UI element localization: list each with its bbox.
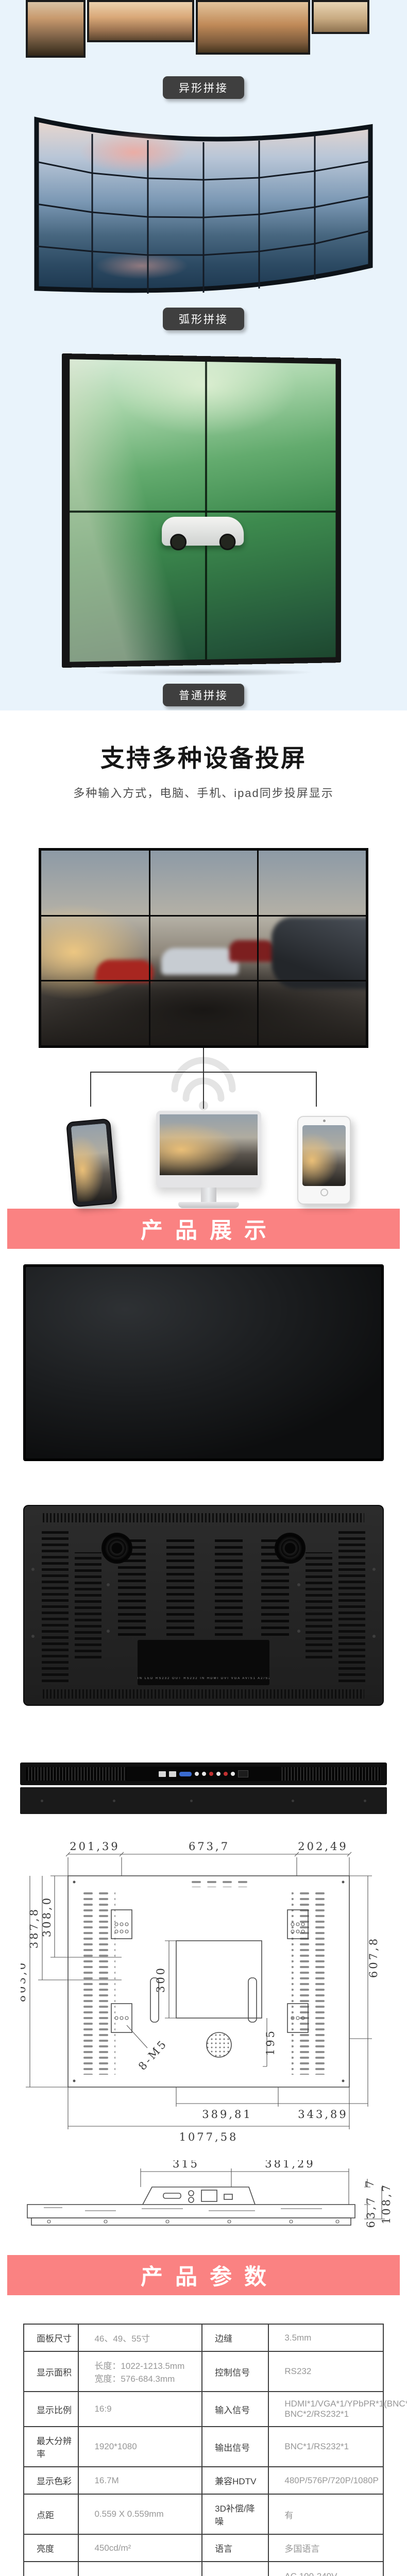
- phone-screen: [71, 1123, 113, 1202]
- wall-panel: [87, 0, 194, 42]
- dim-label: 202,49: [298, 1840, 348, 1853]
- port-labels: IN LED RS232 OUT RS232 IN HDMI DVI VGA A…: [138, 1677, 269, 1680]
- rca-jack: [231, 1772, 235, 1776]
- screen-cast-section: 支持多种设备投屏 多种输入方式，电脑、手机、ipad同步投屏显示: [0, 710, 407, 1209]
- banner-title: 产品展示: [128, 1213, 279, 1245]
- curved-wall-image: [33, 111, 374, 299]
- vent-strip: [43, 1689, 364, 1699]
- table-row: 显示面积 长度：1022-1213.5mm 宽度：576-684.3mm 控制信…: [24, 2351, 383, 2392]
- grid-line: [257, 851, 259, 1045]
- wall-panel: [26, 0, 86, 58]
- dim-label: 315: [173, 2160, 199, 2170]
- spec-value: BNC*1/RS232*1: [268, 2427, 383, 2467]
- grid-line: [41, 915, 366, 917]
- banner-title: 产品参数: [128, 2259, 279, 2291]
- hero-section: 异形拼接 弧形: [0, 0, 407, 710]
- rca-jack: [209, 1772, 213, 1776]
- table-row: 最大分辨率 1920*1080 输出信号 BNC*1/RS232*1: [24, 2427, 383, 2467]
- spec-value: 3.5mm: [268, 2324, 383, 2351]
- irregular-splice-label: 异形拼接: [163, 76, 244, 99]
- io-connector-cluster: [126, 1767, 281, 1781]
- rj45-port: [169, 1771, 176, 1777]
- spec-value: 450cd/m²: [78, 2534, 202, 2562]
- spec-value: 46、49、55寸: [78, 2324, 202, 2351]
- connector-line: [90, 1072, 91, 1107]
- normal-splice-label: 普通拼接: [163, 684, 244, 706]
- wall-panel: [196, 0, 310, 55]
- normal-wall-image: [61, 353, 341, 668]
- cast-subtitle: 多种输入方式，电脑、手机、ipad同步投屏显示: [0, 784, 407, 801]
- spec-value: 长度：1022-1213.5mm 宽度：576-684.3mm: [78, 2351, 202, 2392]
- spec-key: 控制信号: [202, 2351, 268, 2392]
- vent-strip: [43, 1513, 364, 1522]
- dim-label: 673,7: [189, 1840, 230, 1853]
- dim-label: 308,0: [41, 1896, 53, 1937]
- panel-front-screen: [26, 1267, 381, 1459]
- dim-label: 63,7: [365, 2196, 377, 2228]
- table-row: 显示色彩 16.7M 兼容HDTV 480P/576P/720P/1080P: [24, 2467, 383, 2494]
- spec-key: 边缝: [202, 2324, 268, 2351]
- dim-label: 300: [155, 1966, 167, 1993]
- spec-value: 16:9: [78, 2392, 202, 2427]
- cast-title: 支持多种设备投屏: [0, 738, 407, 774]
- dim-label: 803,0: [21, 1961, 28, 2002]
- tablet-mockup: [297, 1116, 351, 1205]
- table-row: 显示比例 16:9 输入信号 HDMI*1/VGA*1/YPbPR*1(BNC*…: [24, 2392, 383, 2427]
- irregular-wall-image: [0, 0, 407, 61]
- panel-back-image: IN LED RS232 OUT RS232 IN HDMI DVI VGA A…: [23, 1505, 384, 1706]
- dim-label: 387,8: [28, 1907, 40, 1948]
- section-banner-product-display: 产品展示: [7, 1209, 400, 1249]
- spec-key: 对比度: [24, 2562, 78, 2576]
- spec-key: 最大分辨率: [24, 2427, 78, 2467]
- grid-line: [149, 851, 150, 1045]
- spec-key: 显示色彩: [24, 2467, 78, 2494]
- vent-grid: [118, 1539, 289, 1636]
- video-wall-image: [39, 848, 368, 1048]
- tablet-screen: [302, 1125, 346, 1186]
- rca-jack: [224, 1772, 228, 1776]
- connector-line: [203, 1048, 204, 1072]
- panel-bottom-image: [20, 1762, 387, 1814]
- rca-jack: [216, 1772, 221, 1776]
- connector-line: [316, 1072, 317, 1107]
- spec-value: 16.7M: [78, 2467, 202, 2494]
- dim-label: 389,81: [202, 2108, 252, 2121]
- spec-table-wrap: 面板尺寸 46、49、55寸 边缝 3.5mm 显示面积 长度：1022-121…: [23, 2324, 384, 2576]
- spec-key: 面板尺寸: [24, 2324, 78, 2351]
- curved-wall-svg: [33, 111, 374, 297]
- spec-key: 兼容HDTV: [202, 2467, 268, 2494]
- rca-jack: [202, 1772, 206, 1776]
- tablet-home-button: [320, 1189, 328, 1196]
- spec-value: 多国语言: [268, 2534, 383, 2562]
- io-port-panel: IN LED RS232 OUT RS232 IN HDMI DVI VGA A…: [138, 1640, 269, 1685]
- dim-label: 108,7: [380, 2183, 393, 2224]
- label-text: 弧形拼接: [179, 314, 228, 326]
- monitor-stand: [201, 1188, 216, 1202]
- table-row: 亮度 450cd/m² 语言 多国语言: [24, 2534, 383, 2562]
- spec-key: 3D补偿/降噪: [202, 2494, 268, 2534]
- spec-value: 1920*1080: [78, 2427, 202, 2467]
- spec-key: 显示比例: [24, 2392, 78, 2427]
- dim-label: 8-M5: [136, 2037, 170, 2073]
- dim-label: 7: [364, 2178, 376, 2187]
- spec-key: 亮度: [24, 2534, 78, 2562]
- spec-key: 显示面积: [24, 2351, 78, 2392]
- wall-shadow: [93, 668, 314, 676]
- grid-line: [41, 980, 366, 981]
- dim-label: 195: [264, 2029, 277, 2056]
- tablet-camera: [323, 1120, 326, 1122]
- dim-label: 381,29: [265, 2160, 315, 2170]
- monitor-screen: [156, 1111, 261, 1188]
- dimension-drawing-side: 315 381,29 7 63,7 108,7: [13, 2160, 394, 2238]
- grid-line: [70, 511, 335, 513]
- spec-value: AC 100-240V，50/60Hz: [268, 2562, 383, 2576]
- spec-value: 0.559 X 0.559mm: [78, 2494, 202, 2534]
- dimension-drawing-back: 201,39 673,7 202,49 308,0 387,8 803,0 60…: [21, 1840, 386, 2149]
- table-row: 面板尺寸 46、49、55寸 边缝 3.5mm: [24, 2324, 383, 2351]
- vent-slots: [75, 1552, 101, 1658]
- rj45-port: [159, 1771, 166, 1777]
- spec-key: 输入信号: [202, 2392, 268, 2427]
- rca-jack: [195, 1772, 199, 1776]
- red-car-blob: [94, 960, 156, 982]
- product-display-section: IN LED RS232 OUT RS232 IN HDMI DVI VGA A…: [0, 1264, 407, 2238]
- panel-front-image: [23, 1264, 384, 1461]
- spec-table: 面板尺寸 46、49、55寸 边缝 3.5mm 显示面积 长度：1022-121…: [23, 2324, 384, 2576]
- spec-value: HDMI*1/VGA*1/YPbPR*1(BNC*3) BNC*2/RS232*…: [268, 2392, 383, 2427]
- bottom-mount-bar: [20, 1787, 387, 1814]
- label-text: 普通拼接: [179, 690, 228, 702]
- fan-vent-icon: [101, 1533, 132, 1564]
- section-banner-product-params: 产品参数: [7, 2255, 400, 2295]
- dim-label: 607,8: [367, 1937, 380, 1978]
- silver-car-blob: [161, 948, 239, 975]
- spec-key: 输入电源: [202, 2562, 268, 2576]
- vent-slots: [338, 1531, 365, 1682]
- vent-slots: [42, 1531, 69, 1682]
- spec-key: 点距: [24, 2494, 78, 2534]
- monitor-base: [178, 1202, 239, 1208]
- dim-label: 201,39: [70, 1840, 120, 1853]
- connector-line: [203, 1072, 204, 1109]
- spec-value: 有: [268, 2494, 383, 2534]
- gray-car-blob: [272, 917, 368, 989]
- monitor-mockup: [156, 1111, 261, 1208]
- phone-mockup: [66, 1118, 117, 1208]
- fan-vent-icon: [275, 1533, 306, 1564]
- spec-value: 480P/576P/720P/1080P: [268, 2467, 383, 2494]
- spec-key: 输出信号: [202, 2427, 268, 2467]
- bottom-io-bar: [20, 1762, 387, 1785]
- dim-label: 1077,58: [179, 2131, 239, 2143]
- spec-value: RS232: [268, 2351, 383, 2392]
- curved-splice-label: 弧形拼接: [163, 308, 244, 330]
- table-row: 点距 0.559 X 0.559mm 3D补偿/降噪 有: [24, 2494, 383, 2534]
- darkred-car-blob: [229, 940, 277, 962]
- vga-port: [179, 1772, 192, 1776]
- devices-diagram: [39, 1048, 368, 1209]
- label-text: 异形拼接: [179, 82, 228, 94]
- power-switch: [238, 1770, 248, 1777]
- vent-slots: [306, 1552, 332, 1658]
- spec-value: 1300:1: [78, 2562, 202, 2576]
- wall-panel: [312, 0, 369, 34]
- car-illustration: [162, 516, 244, 545]
- dim-label: 343,89: [298, 2108, 348, 2121]
- table-row: 对比度 1300:1 输入电源 AC 100-240V，50/60Hz: [24, 2562, 383, 2576]
- spec-key: 语言: [202, 2534, 268, 2562]
